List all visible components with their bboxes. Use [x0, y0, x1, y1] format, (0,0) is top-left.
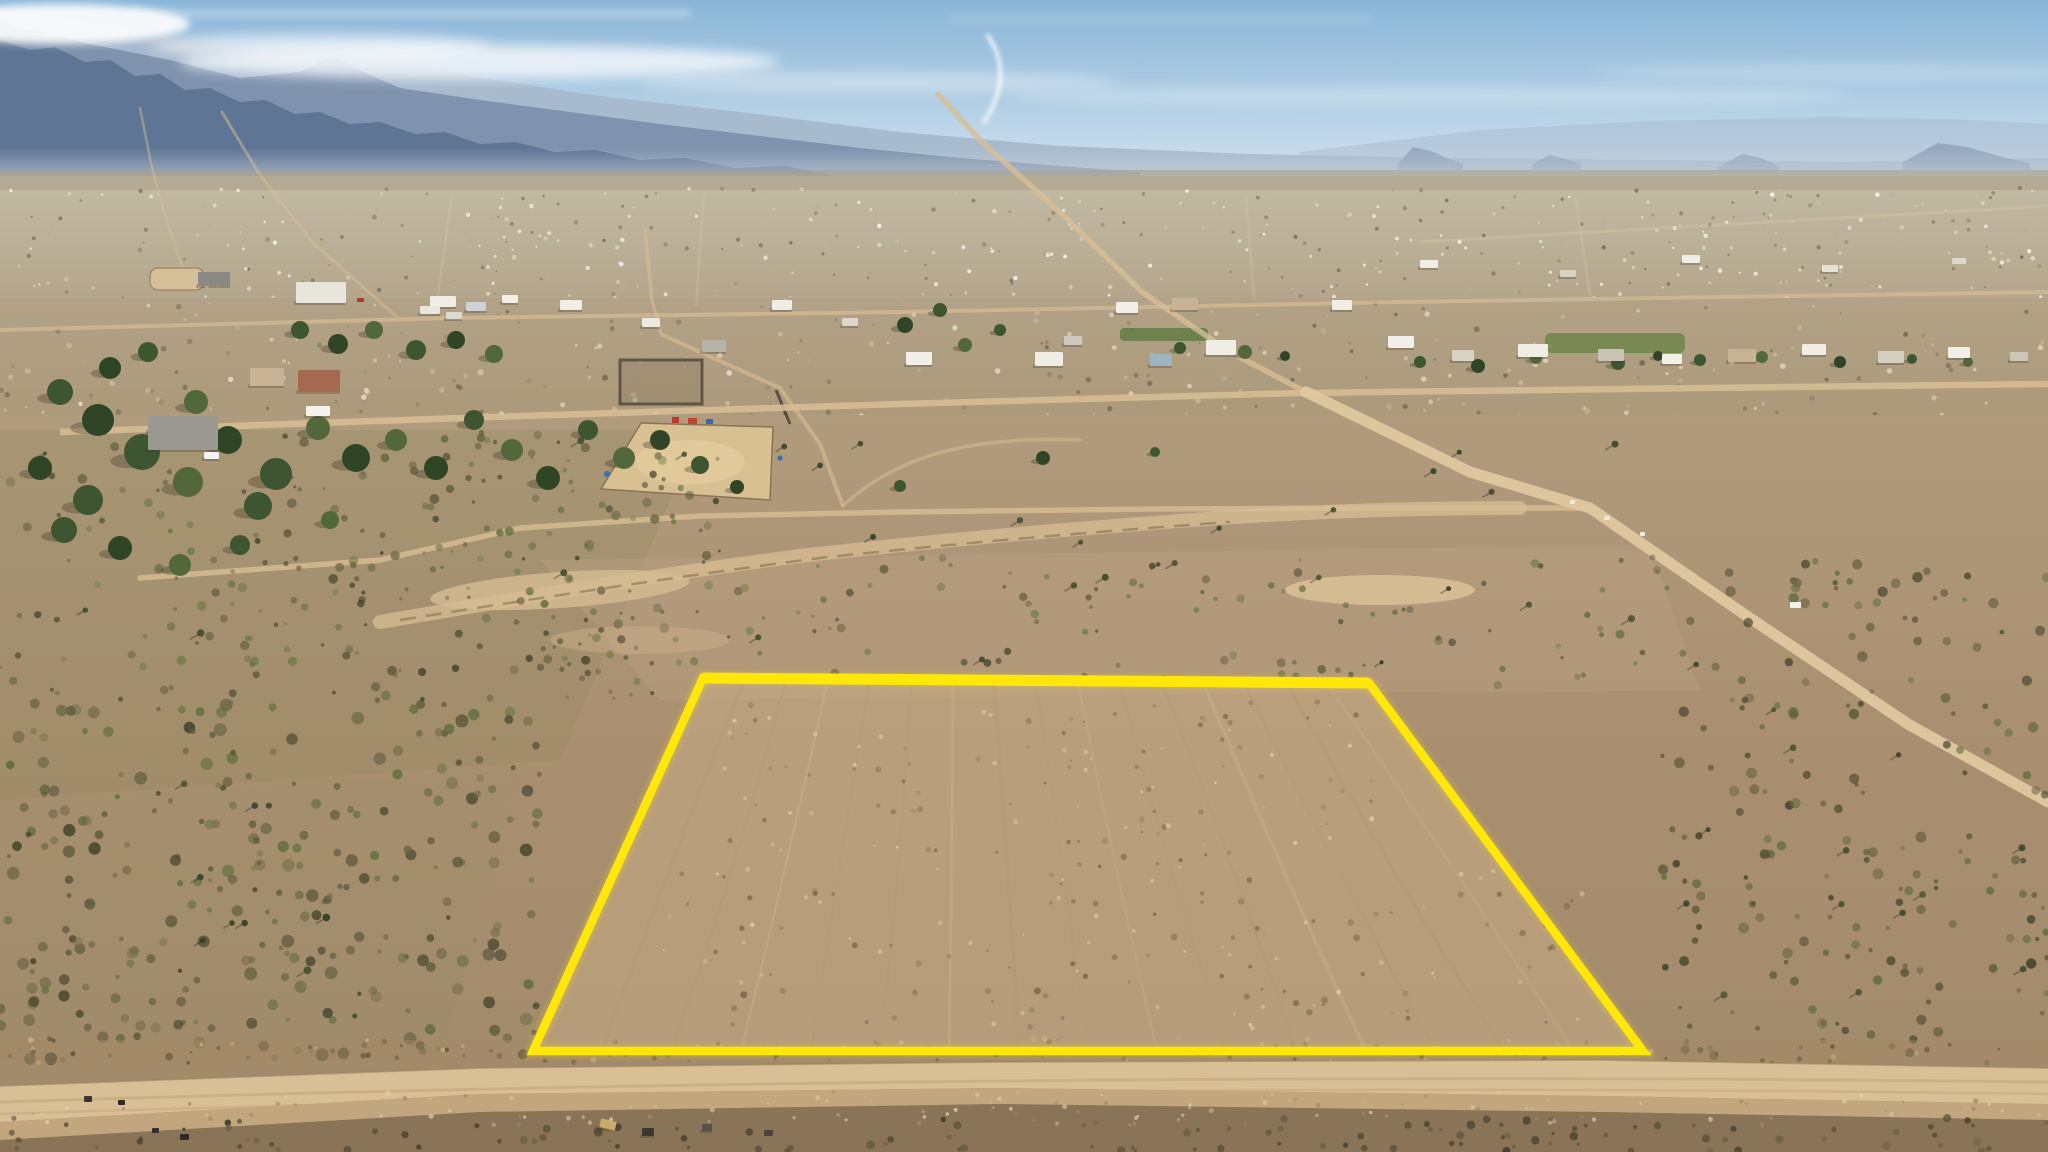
parcel-shrub — [917, 806, 923, 812]
distant-building-speck — [1769, 214, 1773, 218]
berm-rock — [200, 1043, 204, 1047]
distant-building-speck — [29, 247, 32, 250]
shrub — [175, 576, 179, 580]
shrub — [1851, 940, 1860, 949]
shrub — [1777, 841, 1786, 850]
gravel — [582, 1116, 585, 1119]
shrub — [1896, 899, 1903, 906]
shrub — [1745, 753, 1751, 759]
distant-building-speck — [1230, 271, 1232, 273]
distant-building-speck — [169, 239, 171, 241]
distant-building-speck — [575, 239, 577, 241]
gravel — [1316, 1103, 1321, 1108]
shrub — [30, 728, 36, 734]
shrub — [7, 854, 11, 858]
parcel-shrub — [728, 838, 733, 843]
shrub — [347, 806, 354, 813]
tree — [321, 511, 339, 529]
gravel — [40, 1112, 45, 1117]
shrub — [1725, 568, 1734, 577]
gravel — [849, 937, 852, 940]
shrub — [1504, 1132, 1511, 1139]
shrub — [482, 614, 491, 623]
tree — [613, 447, 635, 469]
distant-building-speck — [264, 221, 266, 223]
parcel-shrub — [925, 847, 931, 853]
parcel-shrub — [779, 926, 783, 930]
shrub — [196, 707, 205, 716]
shrub — [1785, 658, 1793, 666]
parcel-shrub — [991, 1000, 994, 1003]
parcel-shrub — [686, 903, 689, 906]
shrub — [1467, 1121, 1476, 1130]
shrub — [1548, 1117, 1553, 1122]
distant-building-speck — [2006, 259, 2010, 263]
gravel — [1386, 1115, 1388, 1117]
mid-speck — [1312, 324, 1316, 328]
distant-building-speck — [328, 264, 330, 266]
bottom-road-layer — [0, 1060, 2048, 1152]
mid-speck — [1040, 342, 1043, 345]
shrub — [1916, 905, 1925, 914]
shrub — [270, 748, 277, 755]
joshua-tree — [1919, 891, 1926, 898]
mid-speck — [869, 341, 875, 347]
shrub — [696, 610, 699, 613]
shrub — [522, 557, 525, 560]
shrub — [1009, 572, 1012, 575]
distant-building-speck — [1395, 237, 1399, 241]
parcel-shrub — [903, 747, 906, 750]
distant-building-speck — [1970, 287, 1973, 290]
shrub — [398, 669, 401, 672]
mid-speck — [5, 392, 10, 397]
shrub — [608, 1139, 611, 1142]
distant-building-speck — [2038, 264, 2042, 268]
distant-building-speck — [1165, 226, 1167, 228]
shrub — [353, 811, 361, 819]
parcel-shrub — [722, 875, 725, 878]
gravel — [1859, 1094, 1863, 1098]
shrub — [352, 712, 365, 725]
gravel — [826, 1099, 829, 1102]
distant-building-speck — [183, 258, 186, 261]
distant-building-speck — [220, 188, 223, 191]
tree — [1834, 356, 1846, 368]
berm-rock — [190, 1051, 192, 1053]
shrub — [1928, 1124, 1934, 1130]
shrub — [1870, 689, 1875, 694]
mid-speck — [150, 389, 154, 393]
shrub — [1603, 1133, 1608, 1138]
shrub — [349, 583, 355, 589]
gravel — [804, 895, 808, 899]
shrub — [253, 532, 258, 537]
shrub — [282, 433, 288, 439]
gravel — [1431, 972, 1434, 975]
parcel-shrub — [1237, 745, 1242, 750]
shrub — [658, 456, 667, 465]
shrub — [418, 668, 426, 676]
shrub — [1912, 572, 1923, 583]
shrub — [1986, 1146, 1992, 1152]
mid-speck — [270, 338, 274, 342]
distant-building-speck — [198, 245, 201, 248]
mid-speck — [1263, 351, 1267, 355]
gravel — [1580, 1115, 1584, 1119]
mid-speck — [1924, 350, 1926, 352]
shrub — [1531, 559, 1540, 568]
distant-building-speck — [1245, 248, 1248, 251]
shrub — [261, 823, 272, 834]
gravel — [991, 1022, 996, 1027]
distant-building-speck — [1558, 239, 1562, 243]
joshua-tree — [197, 874, 204, 881]
shrub — [1782, 948, 1793, 959]
berm-rock — [308, 1045, 312, 1049]
shrub — [1803, 771, 1811, 779]
mid-speck — [208, 302, 210, 304]
mid-speck — [1448, 374, 1452, 378]
shrub — [238, 583, 248, 593]
distant-building-speck — [1402, 206, 1407, 211]
gravel — [1471, 1105, 1475, 1109]
shrub — [757, 651, 762, 656]
distant-building-speck — [1601, 222, 1605, 226]
distant-building-speck — [2027, 249, 2031, 253]
shrub — [1933, 596, 1938, 601]
joshua-tree — [1489, 489, 1495, 495]
distant-building-speck — [277, 271, 281, 275]
shrub — [1616, 630, 1625, 639]
shrub — [322, 487, 325, 490]
distant-building-speck — [453, 280, 455, 282]
distant-building-speck — [814, 211, 818, 215]
shrub — [440, 566, 443, 569]
joshua-tree — [1156, 562, 1161, 567]
shrub — [606, 505, 613, 512]
shrub — [248, 956, 255, 963]
shrub — [1229, 652, 1237, 660]
shrub — [64, 1122, 69, 1127]
mid-speck — [1946, 363, 1951, 368]
gravel — [832, 1090, 835, 1093]
shrub — [1852, 559, 1862, 569]
distant-building-speck — [982, 242, 986, 246]
joshua-tree — [1628, 615, 1635, 622]
gravel — [1525, 1107, 1527, 1109]
gravel — [1478, 876, 1483, 881]
joshua-tree — [1071, 582, 1077, 588]
building — [1116, 302, 1138, 313]
mid-speck — [183, 385, 188, 390]
gravel — [1222, 946, 1224, 948]
shrub — [173, 1020, 183, 1030]
building — [1878, 351, 1904, 363]
shrub — [1712, 663, 1720, 671]
distant-building-speck — [1108, 294, 1111, 297]
mid-speck — [1147, 381, 1152, 386]
mid-speck — [478, 369, 484, 375]
shrub — [537, 772, 542, 777]
shrub — [477, 774, 484, 781]
shrub — [1762, 789, 1767, 794]
shrub — [334, 783, 341, 790]
distant-building-speck — [239, 231, 242, 234]
distant-building-speck — [713, 294, 716, 297]
mid-speck — [1973, 368, 1977, 372]
distant-building-speck — [857, 251, 861, 255]
berm-rock — [1906, 1053, 1910, 1057]
distant-building-speck — [615, 245, 619, 249]
gravel — [65, 1107, 69, 1111]
shrub — [1449, 1141, 1455, 1147]
shrub — [477, 434, 485, 442]
shrub — [1846, 704, 1850, 708]
berm-rock — [1831, 1054, 1837, 1060]
distant-building-speck — [143, 242, 145, 244]
shrub — [455, 630, 463, 638]
mid-speck — [1403, 404, 1408, 409]
gravel — [813, 732, 818, 737]
distant-building-speck — [1009, 211, 1012, 214]
shrub — [1213, 596, 1218, 601]
parcel-shrub — [986, 949, 989, 952]
shrub — [163, 480, 169, 486]
shrub — [713, 498, 719, 504]
shrub — [957, 1147, 962, 1152]
shrub — [229, 689, 237, 697]
shrub — [1900, 968, 1909, 977]
gravel — [1084, 768, 1088, 772]
gravel — [1090, 758, 1093, 761]
shrub — [1194, 607, 1200, 613]
distant-building-speck — [1330, 285, 1333, 288]
tree — [244, 492, 272, 520]
distant-building-speck — [1754, 272, 1758, 276]
sand-patch — [550, 626, 730, 654]
mid-speck — [787, 359, 790, 362]
parcel-shrub — [1220, 737, 1225, 742]
distant-building-speck — [736, 237, 740, 241]
shrub — [250, 657, 259, 666]
distant-building-speck — [530, 231, 533, 234]
shrub — [156, 707, 160, 711]
gravel — [1987, 1102, 1991, 1106]
gravel — [1015, 1113, 1018, 1116]
gravel — [1709, 1098, 1711, 1100]
gravel — [954, 1108, 958, 1112]
parcel-shrub — [731, 1005, 737, 1011]
shrub — [1456, 1131, 1464, 1139]
distant-building-speck — [1774, 199, 1777, 202]
shrub — [1679, 956, 1689, 966]
shrub — [11, 1116, 16, 1121]
distant-building-speck — [138, 189, 142, 193]
distant-building-speck — [1628, 282, 1631, 285]
shrub — [26, 832, 32, 838]
shrub — [43, 452, 47, 456]
joshua-tree — [229, 920, 235, 926]
shrub — [187, 900, 196, 909]
shrub — [217, 886, 223, 892]
gravel — [771, 843, 775, 847]
distant-building-speck — [655, 192, 657, 194]
parcel-shrub — [753, 718, 758, 723]
shrub — [57, 513, 62, 518]
shrub — [526, 655, 533, 662]
joshua-tree — [1316, 575, 1322, 581]
shrub — [630, 515, 636, 521]
shrub — [30, 969, 35, 974]
shrub — [157, 511, 165, 519]
shrub — [741, 584, 750, 593]
mid-speck — [527, 379, 532, 384]
shrub — [527, 590, 532, 595]
shrub — [562, 468, 567, 473]
mid-speck — [873, 323, 875, 325]
distant-building-speck — [1899, 239, 1903, 243]
shrub — [457, 955, 469, 967]
distant-building-speck — [512, 255, 517, 260]
distant-building-speck — [501, 198, 503, 200]
shrub — [1682, 834, 1688, 840]
parcel-shrub — [1497, 892, 1502, 897]
shrub — [1973, 643, 1982, 652]
shrub — [1131, 1146, 1134, 1149]
parcel-shrub — [1282, 989, 1286, 993]
parcel-shrub — [1077, 862, 1082, 867]
parcel-shrub — [755, 804, 758, 807]
shrub — [1730, 1010, 1734, 1014]
gravel — [988, 713, 993, 718]
berm-rock — [246, 1056, 250, 1060]
shrub — [286, 1017, 291, 1022]
shrub — [1531, 1136, 1539, 1144]
distant-building-speck — [869, 208, 873, 212]
building — [702, 340, 726, 352]
distant-building-speck — [486, 265, 490, 269]
shrub — [76, 1010, 84, 1018]
building — [1172, 298, 1198, 310]
distant-building-speck — [589, 243, 593, 247]
shrub — [15, 1146, 20, 1151]
distant-building-speck — [878, 243, 882, 247]
distant-building-speck — [56, 258, 58, 260]
shrub — [1775, 1135, 1784, 1144]
shrub — [128, 651, 136, 659]
building — [1560, 270, 1576, 277]
distant-building-speck — [80, 199, 83, 202]
mid-speck — [1210, 310, 1213, 313]
parcel-shrub — [679, 871, 684, 876]
shrub — [293, 485, 296, 488]
distant-building-speck — [557, 202, 560, 205]
distant-building-speck — [904, 250, 907, 253]
shrub — [937, 583, 945, 591]
shrub — [1665, 586, 1670, 591]
shrub — [919, 555, 925, 561]
distant-building-speck — [228, 222, 230, 224]
mid-speck — [1147, 374, 1151, 378]
building — [1802, 344, 1826, 355]
shrub — [662, 477, 666, 481]
shrub — [1082, 629, 1088, 635]
shrub — [517, 597, 525, 605]
distant-building-speck — [1560, 197, 1564, 201]
mid-speck — [1404, 356, 1408, 360]
distant-building-speck — [991, 250, 994, 253]
joshua-tree — [781, 444, 787, 450]
berm-rock — [489, 1049, 493, 1053]
shrub — [269, 703, 277, 711]
distant-building-speck — [242, 247, 245, 250]
shrub — [246, 1018, 257, 1029]
parcel-shrub — [916, 791, 921, 796]
shrub — [575, 556, 580, 561]
distant-building-speck — [1890, 192, 1895, 197]
gravel — [1087, 941, 1091, 945]
distant-building-speck — [1142, 192, 1145, 195]
parcel-outline-top-edge — [703, 678, 1369, 683]
gravel — [739, 980, 743, 984]
distant-building-speck — [1160, 277, 1163, 280]
berm-rock — [186, 1061, 190, 1065]
shrub — [658, 485, 664, 491]
mid-speck — [835, 318, 838, 321]
shrub — [505, 527, 513, 535]
shrub — [1390, 1145, 1398, 1152]
gravel — [1166, 823, 1171, 828]
mid-speck — [1033, 318, 1038, 323]
shrub — [1903, 963, 1908, 968]
distant-building-speck — [1376, 205, 1379, 208]
mid-speck — [42, 411, 44, 413]
shrub — [642, 498, 651, 507]
distant-building-speck — [1223, 206, 1225, 208]
gravel — [249, 1113, 254, 1118]
shrub — [88, 707, 100, 719]
parcel-shrub — [1070, 961, 1075, 966]
gravel — [1271, 1093, 1274, 1096]
shrub — [1873, 598, 1881, 606]
mid-speck — [887, 342, 890, 345]
joshua-tree — [755, 634, 761, 640]
shrub — [1749, 784, 1759, 794]
shrub — [584, 618, 588, 622]
shrub — [95, 1145, 99, 1149]
tree — [424, 456, 448, 480]
distant-building-speck — [895, 241, 898, 244]
shrub — [12, 731, 24, 743]
shrub — [497, 1139, 502, 1144]
berm-rock — [1664, 1057, 1667, 1060]
building — [420, 306, 440, 314]
shrub — [477, 555, 484, 562]
shrub — [1886, 926, 1890, 930]
shrub — [228, 580, 236, 588]
joshua-tree — [1102, 574, 1109, 581]
gravel — [1769, 1116, 1773, 1120]
shrub — [716, 457, 720, 461]
mid-speck — [1348, 342, 1351, 345]
mid-speck — [25, 368, 31, 374]
shrub — [1744, 875, 1748, 879]
shrub — [195, 641, 199, 645]
parcel-shrub — [812, 888, 817, 893]
shrub — [1794, 914, 1800, 920]
parcel-shrub — [1061, 1016, 1064, 1019]
